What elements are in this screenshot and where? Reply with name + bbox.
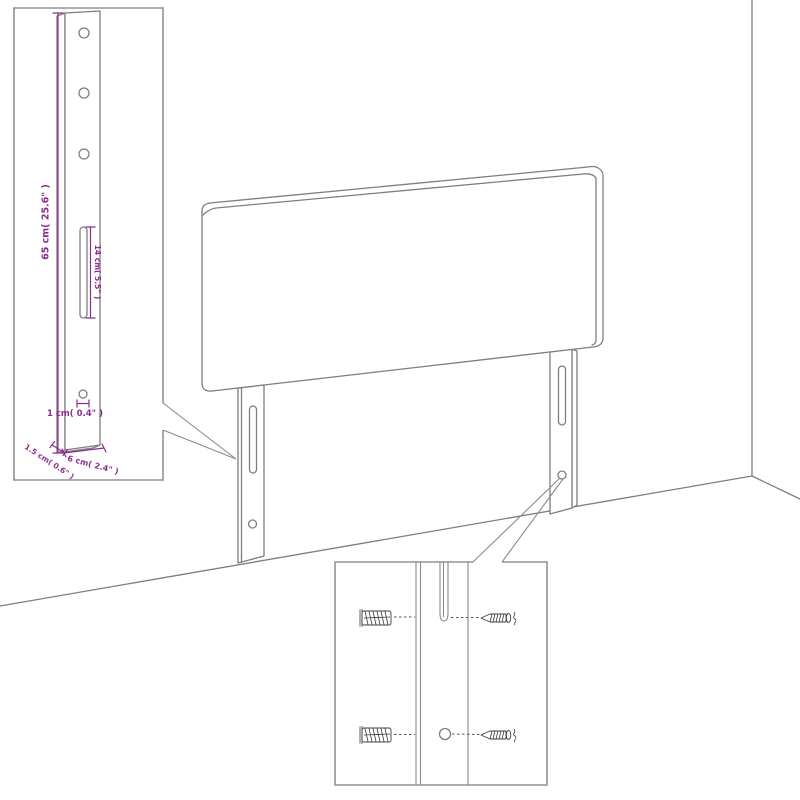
inset-leg-small-hole <box>79 390 87 398</box>
inset-leg-hole-1 <box>79 28 89 38</box>
screw-head <box>506 730 510 739</box>
floor-line-right <box>752 476 800 499</box>
mounting-inset-background <box>335 562 547 785</box>
inset-leg-piece <box>57 11 100 453</box>
dimension-hole-label: 1 cm( 0.4" ) <box>47 409 103 419</box>
inset-leg-hole-3 <box>79 149 89 159</box>
headboard-outline <box>202 167 603 392</box>
inset-leg-slot <box>80 227 87 318</box>
right-leg-side-face <box>572 349 577 508</box>
callout-line-upper <box>163 403 236 459</box>
wall-plug-icon <box>360 726 391 744</box>
screw-head <box>506 613 510 622</box>
left-leg-slot <box>250 406 257 473</box>
callout-line-left <box>473 478 560 562</box>
left-leg-hole <box>249 520 257 528</box>
left-leg <box>238 385 264 563</box>
dimension-slot-label: 14 cm( 5.5" ) <box>93 245 102 300</box>
right-leg-hole <box>558 471 566 479</box>
right-leg <box>550 349 577 514</box>
inset-leg-hole-2 <box>79 88 89 98</box>
mounting-detail-inset <box>335 562 547 785</box>
diagram-canvas: 65 cm( 25.6" ) 14 cm( 5.5" ) 1 cm( 0.4" … <box>0 0 800 800</box>
callout-line-right <box>502 479 563 562</box>
mounting-hole <box>440 729 451 740</box>
callout-line-lower <box>163 430 236 459</box>
wall-plug-icon <box>360 609 391 627</box>
headboard-panel <box>202 167 603 392</box>
assembly-diagram: 65 cm( 25.6" ) 14 cm( 5.5" ) 1 cm( 0.4" … <box>0 0 800 800</box>
dimension-height-label: 65 cm( 25.6" ) <box>41 184 52 260</box>
right-leg-slot <box>559 366 566 425</box>
